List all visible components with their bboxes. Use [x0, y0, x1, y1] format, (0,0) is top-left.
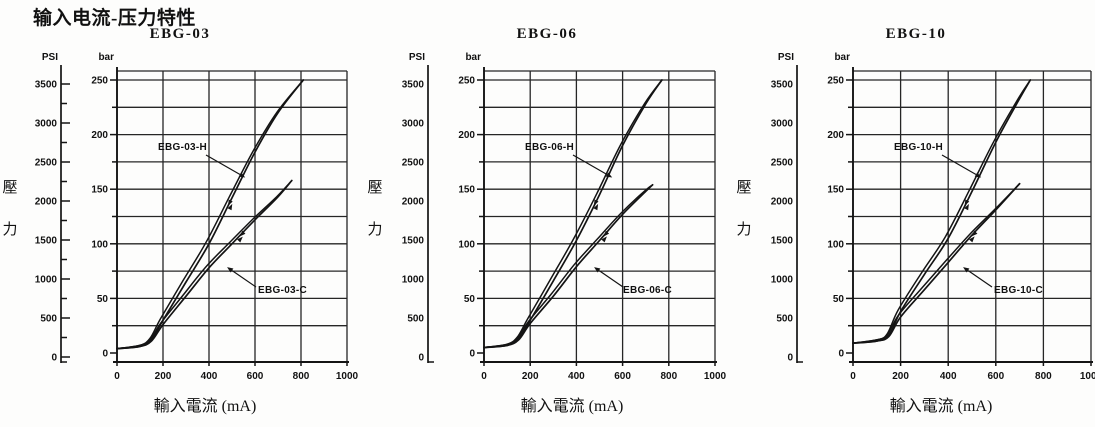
chart-ebg-03-psi-tick-label: 500: [40, 314, 57, 325]
chart-ebg-06-psi-tick-label: 2500: [402, 158, 425, 169]
y-axis-label-pressure: 壓 力: [365, 181, 385, 238]
pressure-chart-svg: 0501001502002500500100015002000250030003…: [0, 0, 1095, 427]
chart-ebg-10-psi-tick-label: 2500: [771, 158, 794, 169]
chart-ebg-10-bar-tick-label: 0: [838, 349, 844, 360]
chart-ebg-10-x-tick-label: 800: [1035, 371, 1052, 382]
chart-ebg-10-x-tick-label: 1000: [1080, 371, 1095, 382]
chart-ebg-10-x-tick-label: 600: [987, 371, 1004, 382]
bar-unit-label: bar: [443, 52, 481, 63]
chart-ebg-10-curve-EBG-10-C-return: [853, 184, 1020, 344]
chart-ebg-10-psi-tick-label: 3000: [771, 119, 794, 130]
chart-ebg-06-psi-tick-label: 0: [418, 353, 424, 364]
chart-ebg-06-psi-tick-label: 500: [407, 314, 424, 325]
series-label-ebg10-c: EBG-10-C: [994, 285, 1043, 296]
chart-ebg-06-psi-tick-label: 1000: [402, 275, 425, 286]
chart-ebg-06-h-label-leader: [573, 155, 607, 175]
chart-ebg-03-curve-EBG-03-C-return: [117, 181, 292, 349]
chart-ebg-06-bar-tick-label: 250: [458, 76, 475, 87]
series-label-ebg06-h: EBG-06-H: [525, 142, 574, 153]
chart-ebg-03-psi-tick-label: 1000: [35, 275, 58, 286]
chart-ebg-10-psi-tick-label: 1000: [771, 275, 794, 286]
chart-ebg-03-bar-tick-label: 50: [97, 294, 109, 305]
chart-ebg-10-x-tick-label: 0: [850, 371, 856, 382]
pressure-char-bottom: 力: [365, 223, 385, 238]
chart-ebg-10-psi-tick-label: 0: [787, 353, 793, 364]
chart-ebg-10-curve-EBG-10-H-return: [853, 80, 1030, 343]
chart-ebg-03-psi-tick-label: 2500: [35, 158, 58, 169]
chart-ebg-03-bar-tick-label: 0: [102, 349, 108, 360]
chart-ebg-06-x-tick-label: 600: [614, 371, 631, 382]
x-axis-label: 輸入電流 (mA): [861, 392, 1021, 416]
chart-ebg-06-bar-tick-label: 150: [458, 185, 475, 196]
bar-unit-label: bar: [812, 52, 850, 63]
pressure-char-top: 壓: [365, 181, 385, 196]
bar-unit-label: bar: [76, 52, 114, 63]
pressure-char-top: 壓: [734, 181, 754, 196]
chart-ebg-06-bar-tick-label: 200: [458, 130, 475, 141]
series-label-ebg03-c: EBG-03-C: [258, 285, 307, 296]
chart-ebg-06-psi-tick-label: 3500: [402, 80, 425, 91]
chart-ebg-10-x-tick-label: 200: [892, 371, 909, 382]
chart-title-ebg03: EBG-03: [120, 26, 240, 43]
chart-ebg-10-bar-tick-label: 100: [827, 239, 844, 250]
chart-ebg-10-bar-tick-label: 150: [827, 185, 844, 196]
chart-ebg-10-psi-tick-label: 3500: [771, 80, 794, 91]
chart-ebg-03-x-tick-label: 0: [114, 371, 120, 382]
chart-ebg-03-x-tick-label: 800: [293, 371, 310, 382]
series-label-ebg03-h: EBG-03-H: [158, 142, 207, 153]
psi-unit-label: PSI: [756, 52, 794, 63]
chart-ebg-06-psi-tick-label: 1500: [402, 236, 425, 247]
chart-ebg-06-bar-tick-label: 0: [469, 349, 475, 360]
y-axis-label-pressure: 壓 力: [734, 181, 754, 238]
x-axis-label: 輸入電流 (mA): [125, 392, 285, 416]
chart-ebg-03-h-label-leader: [206, 155, 240, 175]
chart-ebg-03-x-tick-label: 1000: [336, 371, 359, 382]
chart-ebg-10-c-label-leader: [968, 271, 992, 288]
chart-ebg-03-x-tick-label: 200: [155, 371, 172, 382]
chart-ebg-10-curve-EBG-10-H: [853, 80, 1030, 343]
pressure-char-bottom: 力: [734, 223, 754, 238]
chart-ebg-03-psi-tick-label: 3500: [35, 80, 58, 91]
chart-ebg-10-bar-tick-label: 200: [827, 130, 844, 141]
chart-ebg-06-curve-EBG-06-C: [484, 185, 653, 348]
chart-ebg-03-x-tick-label: 400: [201, 371, 218, 382]
psi-unit-label: PSI: [20, 52, 58, 63]
chart-ebg-06-x-tick-label: 0: [481, 371, 487, 382]
chart-ebg-03-psi-tick-label: 1500: [35, 236, 58, 247]
chart-ebg-06-c-label-leader: [599, 271, 623, 288]
chart-ebg-03-x-tick-label: 600: [247, 371, 264, 382]
chart-ebg-06-bar-tick-label: 50: [464, 294, 476, 305]
chart-ebg-03-bar-tick-label: 200: [91, 130, 108, 141]
y-axis-label-pressure: 壓 力: [0, 181, 20, 238]
chart-ebg-06-x-tick-label: 400: [568, 371, 585, 382]
chart-ebg-10-psi-tick-label: 1500: [771, 236, 794, 247]
chart-ebg-06-x-tick-label: 200: [522, 371, 539, 382]
chart-ebg-03-psi-tick-label: 0: [51, 353, 57, 364]
series-label-ebg10-h: EBG-10-H: [894, 142, 943, 153]
chart-ebg-10-x-tick-label: 400: [940, 371, 957, 382]
chart-ebg-06-psi-tick-label: 2000: [402, 197, 425, 208]
chart-ebg-10-psi-tick-label: 2000: [771, 197, 794, 208]
chart-ebg-10-h-label-leader: [942, 155, 976, 175]
chart-ebg-03-bar-tick-label: 250: [91, 76, 108, 87]
chart-ebg-03-curve-EBG-03-C: [117, 181, 292, 349]
chart-ebg-03-curve-EBG-03-H-return: [117, 80, 303, 349]
chart-ebg-10-bar-tick-label: 50: [833, 294, 845, 305]
chart-ebg-03-c-label-leader: [232, 271, 256, 288]
x-axis-label: 輸入電流 (mA): [492, 392, 652, 416]
chart-ebg-06-bar-tick-label: 100: [458, 239, 475, 250]
pressure-characteristics-figure: 0501001502002500500100015002000250030003…: [0, 0, 1095, 427]
chart-title-ebg06: EBG-06: [487, 26, 607, 43]
chart-ebg-03-curve-EBG-03-H: [117, 80, 303, 349]
chart-ebg-10-psi-tick-label: 500: [776, 314, 793, 325]
chart-ebg-10-bar-tick-label: 250: [827, 76, 844, 87]
psi-unit-label: PSI: [387, 52, 425, 63]
series-label-ebg06-c: EBG-06-C: [623, 285, 672, 296]
chart-title-ebg10: EBG-10: [856, 26, 976, 43]
pressure-char-bottom: 力: [0, 223, 20, 238]
pressure-char-top: 壓: [0, 181, 20, 196]
chart-ebg-03-bar-tick-label: 100: [91, 239, 108, 250]
chart-ebg-06-x-tick-label: 1000: [704, 371, 727, 382]
chart-ebg-03-psi-tick-label: 2000: [35, 197, 58, 208]
chart-ebg-06-curve-EBG-06-H-return: [484, 80, 662, 348]
chart-ebg-06-psi-tick-label: 3000: [402, 119, 425, 130]
chart-ebg-06-x-tick-label: 800: [660, 371, 677, 382]
chart-ebg-10-curve-EBG-10-C: [853, 184, 1020, 344]
chart-ebg-03-bar-tick-label: 150: [91, 185, 108, 196]
chart-ebg-03-psi-tick-label: 3000: [35, 119, 58, 130]
